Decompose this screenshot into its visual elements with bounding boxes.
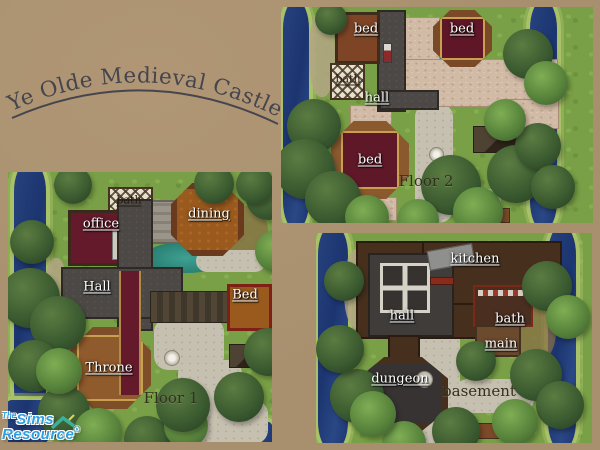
room-label-bed: bed: [354, 22, 378, 37]
tree: [36, 348, 82, 394]
tree: [492, 399, 538, 443]
room-label-bed: bed: [450, 22, 474, 37]
room-label-throne: Throne: [85, 361, 132, 376]
tree: [54, 172, 92, 204]
tree: [316, 325, 364, 373]
room-label-dungeon: dungeon: [371, 372, 428, 387]
bedroom-ne-tower: [433, 10, 492, 67]
floor1-screenshot: bath office dining Hall Bed Throne Floor…: [8, 172, 272, 442]
tree: [244, 328, 272, 376]
svg-text:Ye Olde Medieval Castle: Ye Olde Medieval Castle: [3, 63, 287, 122]
room-label-hall: Hall: [83, 280, 110, 295]
tree: [324, 261, 364, 301]
floor2-screenshot: bed bed bath hall bed Floor 2: [281, 7, 593, 223]
room-label-bath: bath: [495, 312, 525, 327]
room-label-hall: hall: [390, 309, 414, 324]
well: [164, 350, 180, 366]
basement-screenshot: kitchen hall bath main dungeon basement: [316, 233, 592, 443]
logo-the: The: [2, 411, 16, 420]
room-label-office: office: [83, 217, 119, 232]
floor-caption: Floor 2: [399, 172, 454, 190]
logo-roof-icon: [49, 414, 79, 432]
skylight-grid: [380, 263, 430, 313]
room-label-bath: bath: [116, 194, 141, 207]
room-label-bed: Bed: [232, 288, 258, 303]
red-carpet-runner: [119, 271, 141, 395]
tree: [10, 220, 54, 264]
tree: [214, 372, 264, 422]
page-title: Ye Olde Medieval Castle: [0, 10, 290, 170]
tree: [74, 408, 122, 442]
bed-furniture: [478, 290, 526, 296]
tree: [546, 295, 590, 339]
tree: [536, 381, 584, 429]
room-label-hall: hall: [365, 91, 389, 106]
tree: [236, 172, 272, 204]
room-label-dining: dining: [188, 207, 230, 222]
room-label-kitchen: kitchen: [451, 252, 500, 267]
page-background: Ye Olde Medieval Castle: [0, 0, 600, 450]
tsr-logo: TheSims Resource®: [2, 412, 80, 443]
tree: [524, 61, 568, 105]
room-label-bath: bath: [335, 73, 360, 86]
page-title-text: Ye Olde Medieval Castle: [3, 63, 287, 122]
floor-caption: Floor 1: [144, 389, 199, 407]
room-label-bed: bed: [358, 153, 382, 168]
kitchen-door: [430, 277, 454, 285]
floor-caption: basement: [442, 382, 516, 400]
room-label-main: main: [485, 337, 518, 352]
tree: [484, 99, 526, 141]
tree: [350, 391, 396, 437]
bed-furniture: [383, 43, 392, 63]
tree: [531, 165, 575, 209]
